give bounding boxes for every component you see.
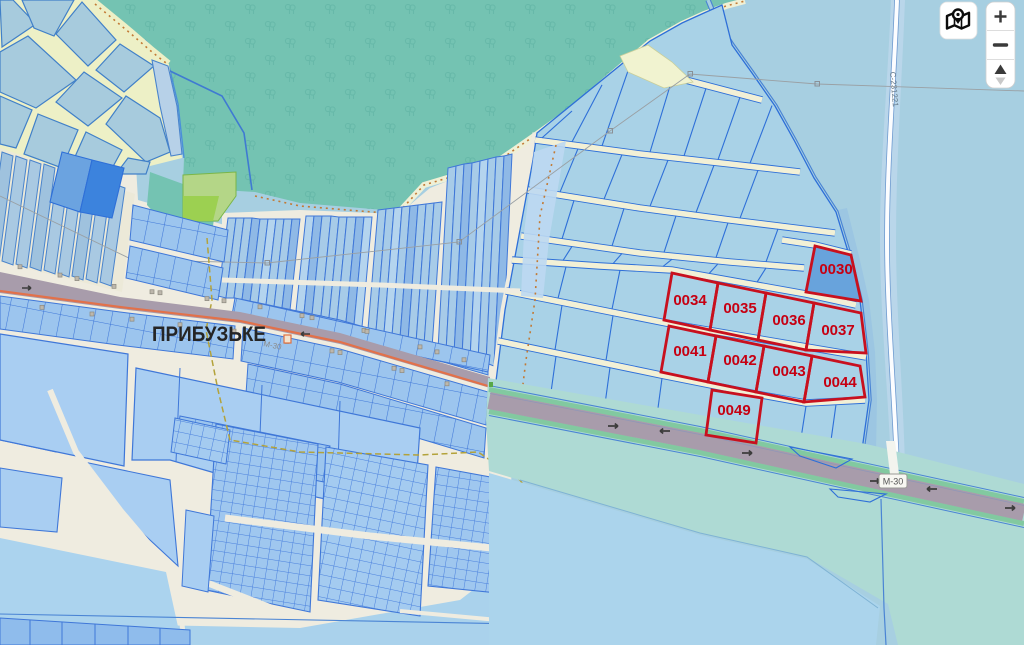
svg-text:М-30: М-30 bbox=[883, 477, 904, 487]
svg-text:0037: 0037 bbox=[821, 322, 854, 339]
svg-text:0049: 0049 bbox=[717, 402, 750, 419]
svg-text:0041: 0041 bbox=[673, 343, 706, 360]
svg-text:0044: 0044 bbox=[823, 374, 857, 391]
svg-text:0034: 0034 bbox=[673, 292, 707, 309]
svg-text:0030: 0030 bbox=[819, 261, 852, 278]
svg-text:0042: 0042 bbox=[723, 352, 756, 369]
svg-text:0036: 0036 bbox=[772, 312, 805, 329]
svg-text:ПРИБУЗЬКЕ: ПРИБУЗЬКЕ bbox=[152, 323, 266, 346]
svg-text:0035: 0035 bbox=[723, 300, 756, 317]
svg-text:0043: 0043 bbox=[772, 363, 805, 380]
